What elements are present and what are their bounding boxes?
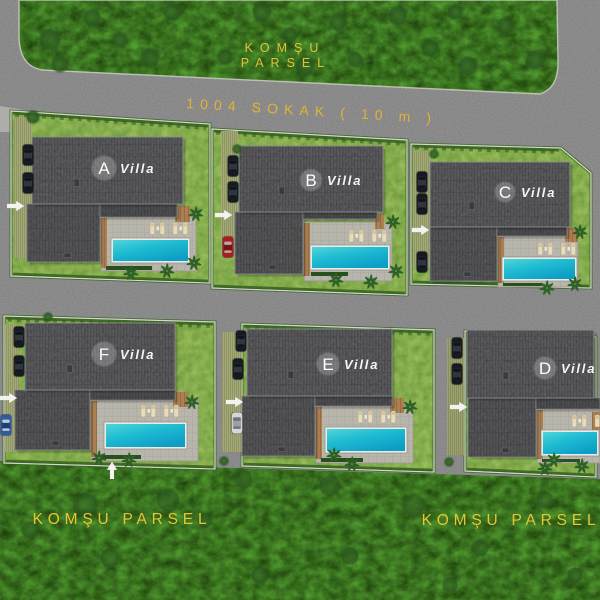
svg-text:KOMŞU: KOMŞU xyxy=(245,41,326,55)
svg-text:Villa: Villa xyxy=(120,161,155,176)
svg-text:KOMŞU PARSEL: KOMŞU PARSEL xyxy=(422,512,600,529)
svg-text:F: F xyxy=(99,345,109,364)
svg-text:KOMŞU PARSEL: KOMŞU PARSEL xyxy=(33,511,212,528)
svg-text:Villa: Villa xyxy=(561,361,596,376)
svg-text:Villa: Villa xyxy=(327,173,362,188)
svg-text:C: C xyxy=(499,183,511,202)
svg-text:E: E xyxy=(322,355,333,374)
svg-text:B: B xyxy=(305,171,316,190)
svg-text:Villa: Villa xyxy=(521,185,556,200)
svg-text:A: A xyxy=(98,159,110,178)
svg-text:D: D xyxy=(539,359,551,378)
svg-text:Villa: Villa xyxy=(344,357,379,372)
svg-text:Villa: Villa xyxy=(120,347,155,362)
svg-text:PARSEL: PARSEL xyxy=(241,56,331,70)
